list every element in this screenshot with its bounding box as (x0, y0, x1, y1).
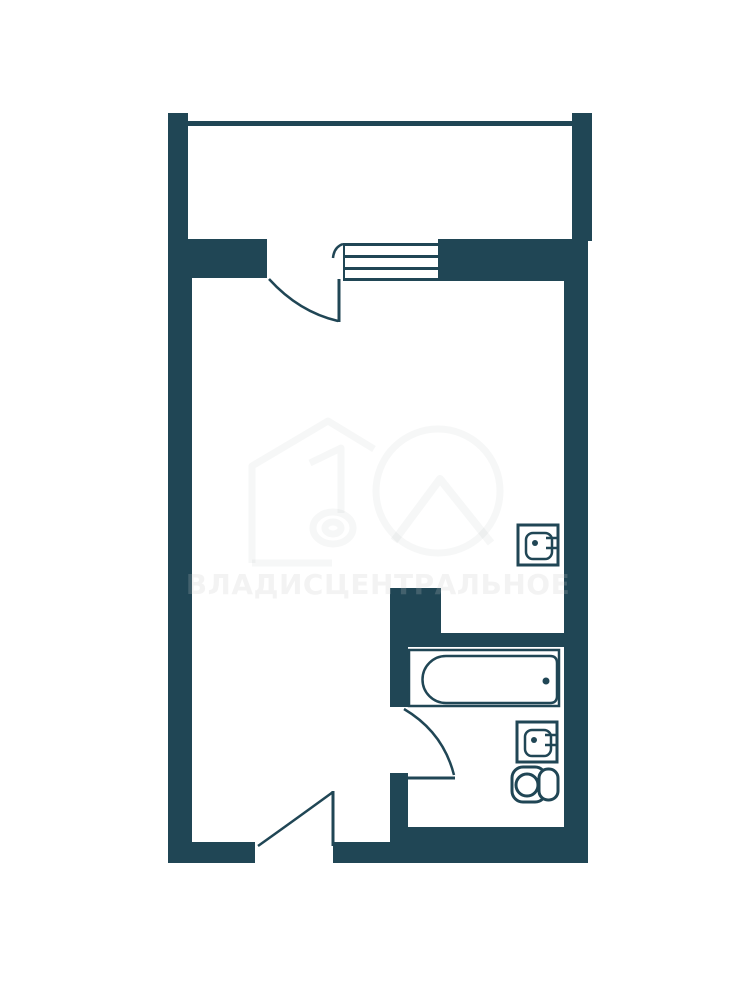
window-edge-left (343, 243, 345, 281)
logo-key-ring-outer (313, 512, 353, 544)
bathroom-wall-lower (390, 773, 408, 863)
balcony-window (333, 243, 440, 281)
entrance-door (258, 791, 333, 846)
toilet-tank (539, 769, 558, 800)
balcony-right-wall (572, 113, 592, 241)
balcony-glazing-line (188, 121, 572, 126)
floor-plan: ВЛАДИСЦЕНТРАЛЬНОЕ ВЛАДИСЦЕНТРАЛЬНОЕ (0, 0, 743, 1006)
logo-number-one (310, 448, 341, 513)
bathroom-door-swing-arc (404, 709, 454, 775)
window-line-3 (343, 267, 440, 270)
bathtub-basin (423, 656, 558, 703)
bathroom-wall-upper (390, 588, 408, 707)
window-line-1 (343, 243, 440, 246)
left-outer-wall (168, 239, 192, 863)
bottom-wall-left-of-entrance (168, 842, 255, 863)
logo-house-outline (252, 421, 374, 563)
walls (168, 113, 592, 863)
window-line-2 (343, 255, 440, 258)
balcony-door-swing-arc (269, 279, 338, 321)
kitchen-sink-icon (518, 525, 558, 565)
bathroom-door (404, 709, 455, 778)
bathtub (409, 650, 559, 706)
bathroom-top-wall (390, 633, 564, 647)
bathtub-drain (543, 678, 550, 685)
entrance-door-swing-arc (258, 792, 333, 846)
balcony-door (269, 279, 339, 322)
logo-key-ring-inner (325, 522, 341, 534)
window-line-4 (343, 278, 440, 281)
bathroom-sink-icon (517, 722, 557, 762)
logo-roof-chevron (394, 479, 491, 543)
right-outer-wall (564, 239, 588, 863)
balcony-left-wall (168, 113, 188, 241)
window-body (343, 243, 440, 281)
bathroom-bottom-wall (408, 827, 588, 863)
sink-drain (532, 540, 538, 546)
window-end-tick (333, 244, 343, 258)
watermark-logo-icon (252, 421, 500, 563)
toilet-icon (512, 767, 558, 802)
toilet-bowl (516, 774, 538, 796)
window-edge-right (438, 243, 440, 281)
sink-drain (531, 737, 537, 743)
floor-plan-drawing (0, 0, 743, 1006)
